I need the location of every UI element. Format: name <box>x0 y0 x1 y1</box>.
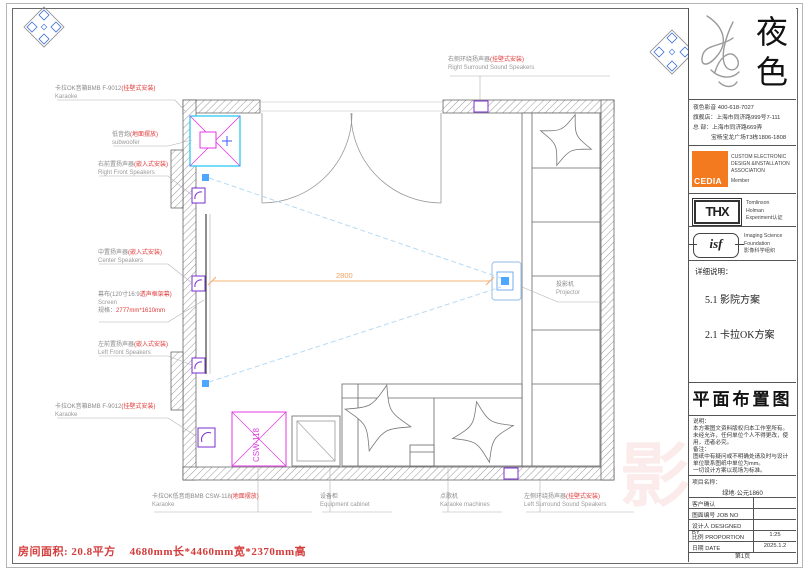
sheet-title: 平面布置图 <box>689 383 796 416</box>
page-number: 第1页 <box>689 553 796 562</box>
title-block-table: 项目名称： 绿地·公元1860 客户确认 图面编号 JOB NO 设计人 DES… <box>689 476 796 562</box>
contact-line: 总 部：上海市同济路669弄 <box>693 123 792 133</box>
thx-text: Tomlinson Holman Experiment认证 <box>746 198 793 223</box>
contact-line: 夜色影音 400-618-7027 <box>693 103 792 113</box>
cedia-cert-section: CEDIA CUSTOM ELECTRONIC DESIGN &INSTALLA… <box>689 146 796 194</box>
room-area: 房间面积: 20.8平方 <box>18 546 116 558</box>
csw-model-text: CSW-118 <box>252 428 261 462</box>
label-center-speakers: 中置扬声器(嵌入式安装) Center Speakers <box>98 249 162 265</box>
brand-logo-section: 夜 色 <box>689 8 796 100</box>
table-row: 设计人 DESIGNED BY <box>689 520 796 531</box>
project-name-row: 项目名称： 绿地·公元1860 <box>689 476 796 498</box>
label-karaoke-bottom: 卡拉OK音箱BMB F-9012(挂壁式安装) Karaoke <box>55 403 155 419</box>
left-surround-speaker <box>504 468 518 479</box>
table-row: 日期 DATE 2025.1.2 <box>689 542 796 553</box>
project-name-label: 项目名称： <box>692 480 721 486</box>
svg-text:影: 影 <box>620 439 690 516</box>
brand-name-vertical: 夜 色 <box>756 12 788 92</box>
contact-line: 宝杨宝龙广场T3栋1806-1808 <box>693 133 792 143</box>
details-section: 详细说明： 5.1 影院方案 2.1 卡拉OK方案 <box>689 261 796 383</box>
karaoke-machine-box <box>410 445 434 466</box>
subwoofer-box <box>190 116 240 166</box>
label-karaoke-subwoofer: 卡拉OK低音炮BMB CSW-118(地面摆放) Karaoke <box>152 493 259 509</box>
right-front-speaker <box>192 188 205 203</box>
brand-signature-icon <box>689 8 755 98</box>
equipment-cabinet <box>292 416 340 466</box>
table-row: 比例 PROPORTION 1:25 <box>689 531 796 542</box>
label-karaoke-machines: 点歌机 Karaoke machines <box>440 493 490 509</box>
sheet-title-section: 平面布置图 <box>689 383 796 416</box>
label-screen: 幕布(120寸16:9透声框架幕) Screen 规格：2777mm*1610m… <box>98 291 172 315</box>
details-item: 5.1 影院方案 <box>705 291 790 306</box>
notes-section: 说明： 本方案图文资料版权归本工作室所有。 未经允许，任何单位个人不得更改，使 … <box>689 416 796 476</box>
dimension-line: 2800 <box>208 271 494 285</box>
label-karaoke-top: 卡拉OK音箱BMB F-9012(挂壁式安装) Karaoke <box>55 85 155 101</box>
room-size: 4680mm长*4460mm宽*2370mm高 <box>130 546 306 558</box>
table-row: 图面编号 JOB NO <box>689 509 796 520</box>
projection-cone <box>209 178 501 382</box>
details-item: 2.1 卡拉OK方案 <box>705 326 790 341</box>
center-speaker <box>192 276 205 291</box>
drawing-sheet: 影 音 <box>0 0 808 570</box>
label-equipment-cabinet: 设备柜 Equipment cabinet <box>320 493 370 509</box>
cedia-logo: CEDIA <box>692 151 728 187</box>
table-row: 客户确认 <box>689 498 796 509</box>
door <box>260 102 443 203</box>
title-block-panel: 夜 色 夜色影音 400-618-7027 旗舰店：上海市同济路999号7-11… <box>688 8 796 562</box>
label-right-surround-speakers: 右侧环绕扬声器(挂壁式安装) Right Surround Sound Spea… <box>448 56 534 72</box>
karaoke-subwoofer-box: CSW-118 <box>232 412 286 466</box>
label-left-front-speakers: 左前置扬声器(嵌入式安装) Left Front Speakers <box>98 341 168 357</box>
isf-cert-section: isf Imaging Science Foundation 影像科学组织 <box>689 227 796 261</box>
watermark: 影 音 <box>620 439 690 570</box>
thx-cert-section: THX Tomlinson Holman Experiment认证 <box>689 194 796 227</box>
thx-logo: THX <box>694 200 740 224</box>
karaoke-speaker-bottom <box>198 428 215 447</box>
elevation-marker-top-left <box>24 7 64 47</box>
contact-section: 夜色影音 400-618-7027 旗舰店：上海市同济路999号7-111 总 … <box>689 100 796 146</box>
cedia-text: CUSTOM ELECTRONIC DESIGN &INSTALLATION A… <box>731 151 793 185</box>
project-name-value: 绿地·公元1860 <box>692 488 793 497</box>
room-area-note: 房间面积: 20.8平方4680mm长*4460mm宽*2370mm高 <box>18 543 320 559</box>
label-subwoofer: 低音炮(地面摆放) subwoofer <box>112 131 158 147</box>
right-surround-speaker <box>474 101 488 112</box>
label-right-front-speakers: 右前置扬声器(嵌入式安装) Right Front Speakers <box>98 161 168 177</box>
details-heading: 详细说明： <box>695 266 790 277</box>
isf-logo: isf <box>693 233 739 258</box>
dimension-text: 2800 <box>336 271 353 280</box>
isf-text: Imaging Science Foundation 影像科学组织 <box>744 231 793 256</box>
label-left-surround-speakers: 左侧环绕扬声器(挂壁式安装) Left Surround Sound Speak… <box>524 493 606 509</box>
projector <box>492 262 521 300</box>
label-projector: 投影机 Projector <box>556 281 580 297</box>
elevation-marker-right <box>650 30 690 74</box>
contact-line: 旗舰店：上海市同济路999号7-111 <box>693 113 792 123</box>
left-front-speaker <box>192 358 205 373</box>
